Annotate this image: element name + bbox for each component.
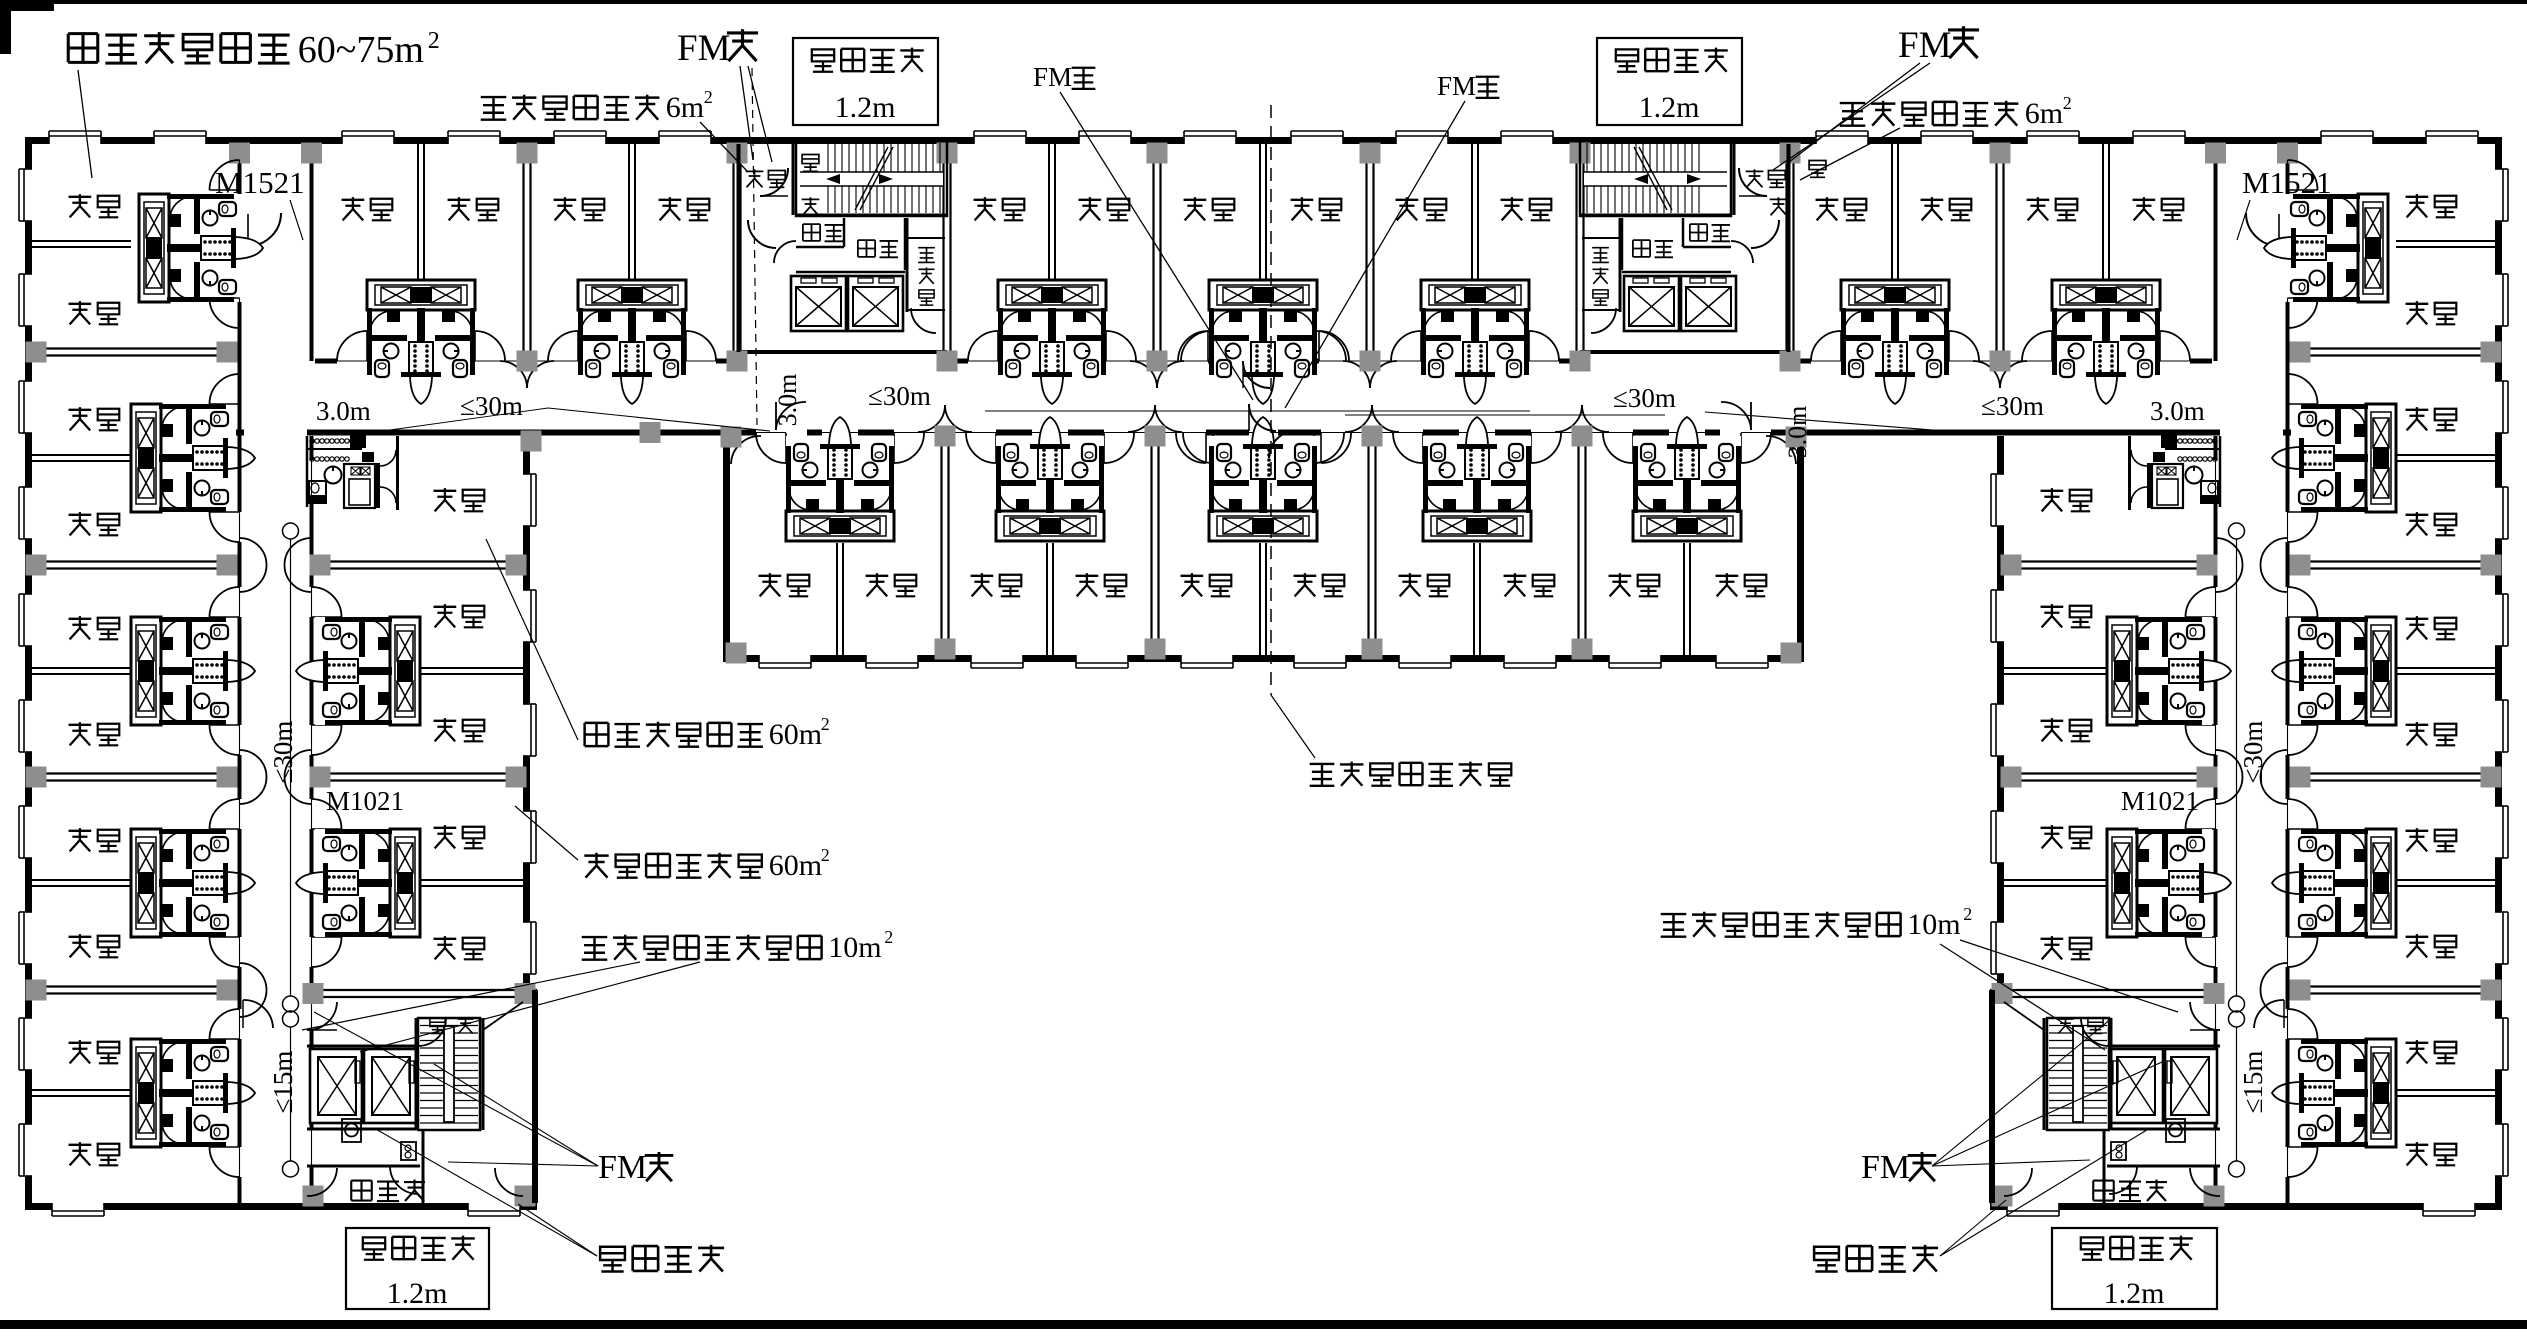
svg-text:FM: FM <box>598 1149 647 1186</box>
svg-text:≤15m: ≤15m <box>2238 1051 2268 1114</box>
svg-text:1.2m: 1.2m <box>387 1277 448 1310</box>
svg-text:60~75m: 60~75m <box>298 29 424 71</box>
svg-text:6m: 6m <box>666 91 704 124</box>
svg-text:2: 2 <box>821 714 830 734</box>
svg-text:FM: FM <box>1898 25 1951 66</box>
svg-text:FM: FM <box>1437 71 1476 101</box>
svg-text:1.2m: 1.2m <box>1639 91 1700 124</box>
svg-text:M1521: M1521 <box>2242 165 2332 200</box>
svg-text:2: 2 <box>428 28 440 54</box>
svg-text:10m: 10m <box>828 931 881 964</box>
svg-text:1.2m: 1.2m <box>2104 1277 2165 1310</box>
svg-text:2: 2 <box>704 87 713 107</box>
svg-text:FM: FM <box>1861 1149 1910 1186</box>
svg-text:1.2m: 1.2m <box>835 91 896 124</box>
svg-text:≤30m: ≤30m <box>2238 721 2268 784</box>
svg-text:3.0m: 3.0m <box>316 396 371 426</box>
svg-text:3.0m: 3.0m <box>2150 396 2205 426</box>
svg-text:6m: 6m <box>2025 97 2063 130</box>
svg-text:2: 2 <box>884 927 893 947</box>
svg-text:M1521: M1521 <box>215 165 305 200</box>
svg-text:2: 2 <box>2063 93 2072 113</box>
svg-text:M1021: M1021 <box>2121 786 2199 816</box>
svg-text:≤30m: ≤30m <box>460 391 523 421</box>
svg-text:2: 2 <box>1963 904 1972 924</box>
svg-text:≤30m: ≤30m <box>1981 391 2044 421</box>
svg-text:FM: FM <box>1033 62 1072 92</box>
svg-text:60m: 60m <box>769 718 822 751</box>
svg-text:M1021: M1021 <box>326 786 404 816</box>
svg-text:FM: FM <box>677 28 730 69</box>
svg-text:60m: 60m <box>769 849 822 882</box>
svg-text:10m: 10m <box>1907 908 1960 941</box>
svg-text:3.0m: 3.0m <box>773 374 802 427</box>
svg-text:≤30m: ≤30m <box>1613 383 1676 413</box>
svg-text:2: 2 <box>821 845 830 865</box>
svg-text:≤30m: ≤30m <box>268 721 298 784</box>
svg-text:≤15m: ≤15m <box>268 1051 298 1114</box>
svg-text:≤30m: ≤30m <box>868 381 931 411</box>
svg-text:3.0m: 3.0m <box>1783 406 1812 459</box>
